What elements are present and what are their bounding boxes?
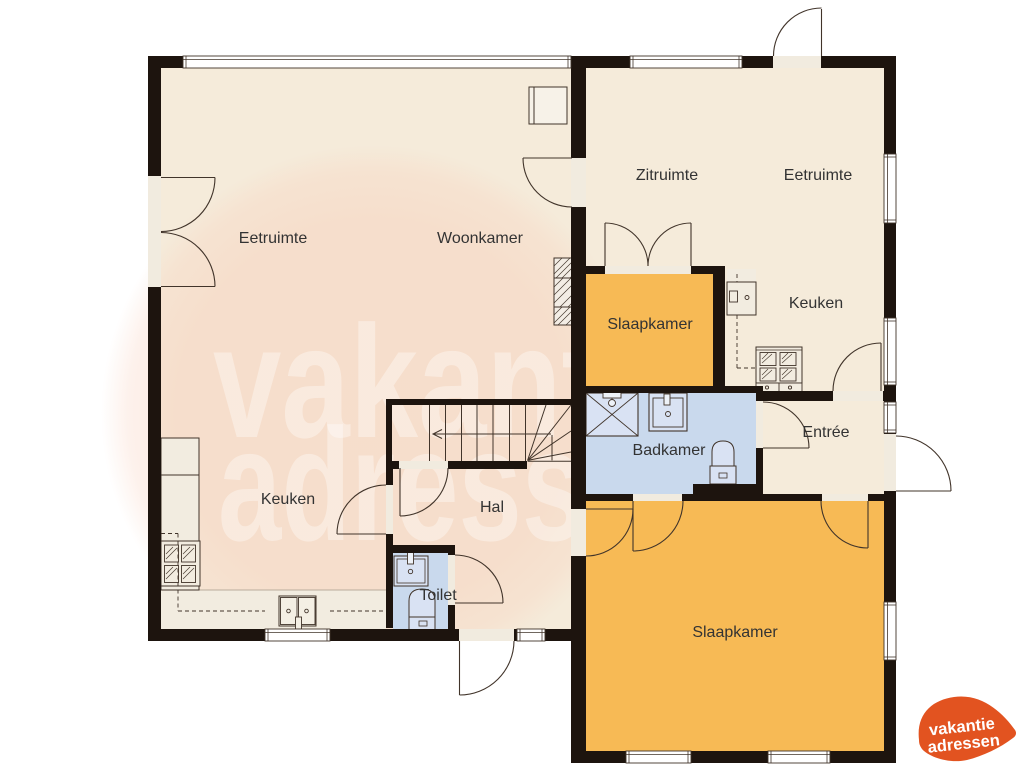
svg-text:Hal: Hal bbox=[480, 499, 504, 516]
svg-text:Toilet: Toilet bbox=[419, 587, 457, 604]
svg-text:Slaapkamer: Slaapkamer bbox=[692, 624, 778, 641]
svg-text:Keuken: Keuken bbox=[261, 491, 315, 508]
svg-text:Entrée: Entrée bbox=[802, 424, 849, 441]
svg-text:Badkamer: Badkamer bbox=[633, 442, 707, 459]
svg-text:Eetruimte: Eetruimte bbox=[239, 230, 308, 247]
svg-text:Eetruimte: Eetruimte bbox=[784, 167, 853, 184]
svg-text:Zitruimte: Zitruimte bbox=[636, 167, 698, 184]
svg-text:Slaapkamer: Slaapkamer bbox=[607, 316, 693, 333]
svg-text:Woonkamer: Woonkamer bbox=[437, 230, 524, 247]
svg-text:Keuken: Keuken bbox=[789, 295, 843, 312]
